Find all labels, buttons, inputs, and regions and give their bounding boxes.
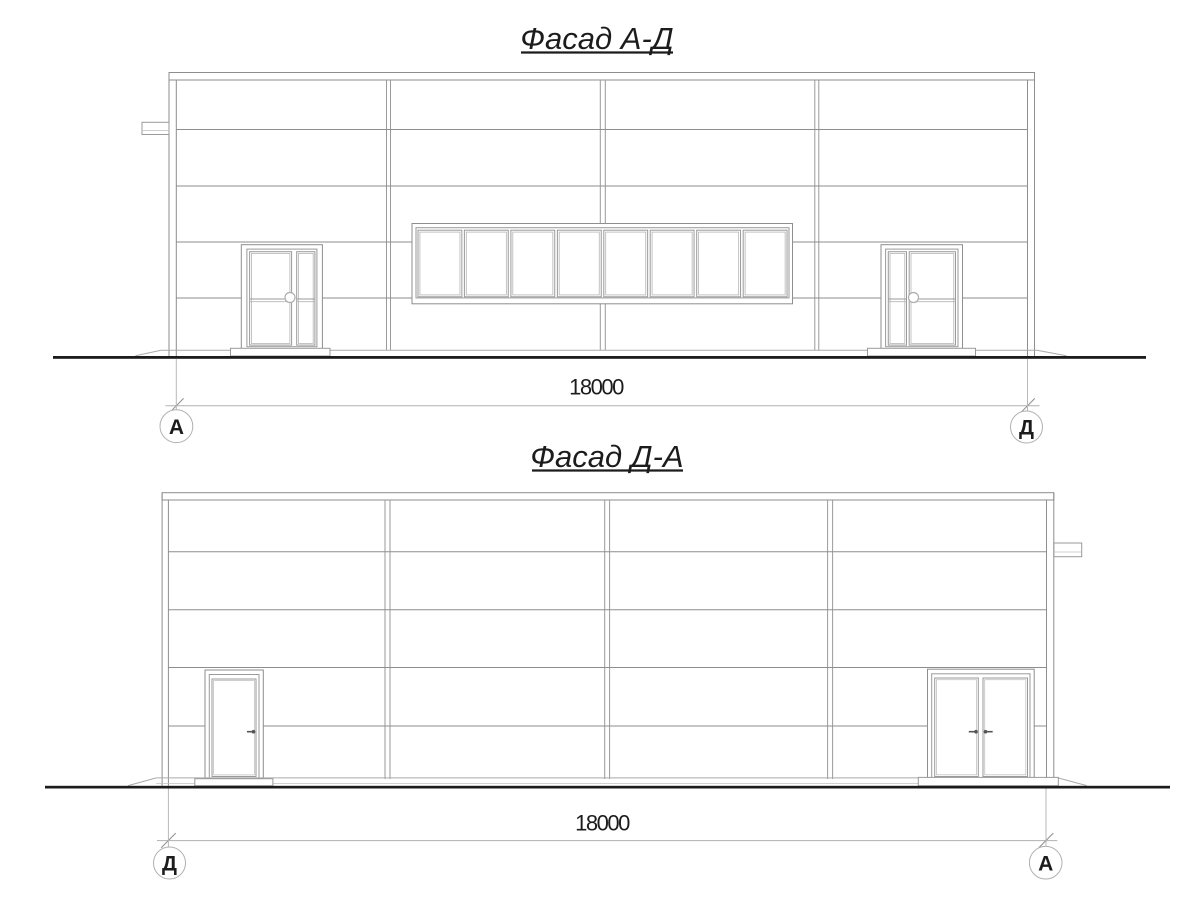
svg-text:Д: Д [1019, 417, 1034, 440]
svg-text:А: А [169, 416, 184, 439]
svg-text:Д: Д [162, 853, 177, 876]
svg-text:Фасад А-Д: Фасад А-Д [520, 21, 673, 56]
svg-text:18000: 18000 [575, 811, 630, 836]
svg-text:Фасад Д-А: Фасад Д-А [530, 439, 683, 474]
svg-text:18000: 18000 [569, 375, 624, 400]
svg-text:А: А [1038, 852, 1053, 875]
